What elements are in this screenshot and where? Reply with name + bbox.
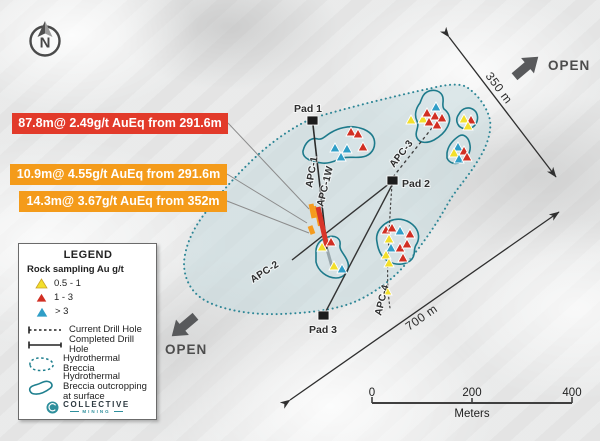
company-logo-text: COLLECTIVE MINING (63, 400, 130, 414)
measurement-700m-label: 700 m (403, 301, 440, 333)
logo-dash (114, 411, 123, 412)
legend-panel: LEGEND Rock sampling Au g/t 0.5 - 1 1 - … (18, 243, 157, 420)
open-label-southwest: OPEN (165, 342, 207, 357)
sample-triangle-red-icon (35, 292, 48, 303)
legend-title: LEGEND (27, 249, 149, 261)
pad3-square (318, 311, 329, 320)
legend-breccia-outcrop-row: Hydrothermal Breccia outcropping at surf… (27, 375, 149, 399)
compass-n-label: N (40, 35, 51, 52)
company-subtitle-text: MINING (82, 409, 110, 414)
callout-result-2: 10.9m@ 4.55g/t AuEq from 291.6m (10, 164, 227, 185)
compass-rose: N (31, 21, 60, 56)
company-subtitle: MINING (70, 409, 122, 414)
collective-mining-logo-icon (46, 401, 59, 414)
pad3-label: Pad 3 (309, 324, 337, 336)
sample-triangle-blue-icon (35, 306, 49, 318)
open-arrow-northeast-icon (508, 49, 545, 84)
pad1-square (307, 116, 318, 125)
open-arrow-southwest-icon (165, 309, 202, 344)
interval-bar-orange-lower (310, 226, 313, 234)
legend-breccia-row: Hydrothermal Breccia (27, 356, 149, 372)
completed-drill-hole-icon (27, 340, 63, 350)
legend-class-label: 1 - 3 (54, 293, 73, 303)
legend-sampling-title: Rock sampling Au g/t (27, 264, 149, 275)
company-logo: COLLECTIVE MINING (27, 400, 149, 415)
current-drill-hole-icon (27, 325, 63, 335)
hydrothermal-breccia-icon (27, 355, 57, 373)
legend-class-row: 0.5 - 1 (27, 277, 149, 290)
legend-class-label: 0.5 - 1 (54, 279, 81, 289)
callout-result-3: 14.3m@ 3.67g/t AuEq from 352m (19, 191, 227, 212)
pad1-label: Pad 1 (294, 103, 322, 115)
sample-triangle-yellow-icon (35, 278, 48, 289)
legend-class-label: > 3 (55, 307, 68, 317)
open-label-northeast: OPEN (548, 58, 590, 73)
pad2-square (387, 176, 398, 185)
legend-class-row: 1 - 3 (27, 291, 149, 304)
legend-line-label: Current Drill Hole (69, 325, 142, 335)
logo-dash (70, 411, 79, 412)
interval-bar-orange-upper (311, 204, 314, 218)
legend-line-label: Completed Drill Hole (69, 335, 149, 355)
hydrothermal-breccia-outcrop-icon (27, 377, 57, 397)
scale-tick-200: 200 (462, 387, 481, 399)
scale-unit-label: Meters (454, 408, 489, 420)
pad2-label: Pad 2 (402, 178, 430, 190)
mine-map: Pad 1 Pad 2 Pad 3 APC-1 APC-1W APC-2 APC… (0, 0, 600, 441)
callout-result-1: 87.8m@ 2.49g/t AuEq from 291.6m (12, 113, 228, 134)
company-name: COLLECTIVE (63, 400, 130, 409)
legend-area-label: Hydrothermal Breccia outcropping at surf… (63, 372, 149, 402)
legend-completed-hole-row: Completed Drill Hole (27, 337, 149, 353)
scale-bar: 0 200 400 Meters (360, 384, 590, 422)
legend-class-row: > 3 (27, 305, 149, 318)
